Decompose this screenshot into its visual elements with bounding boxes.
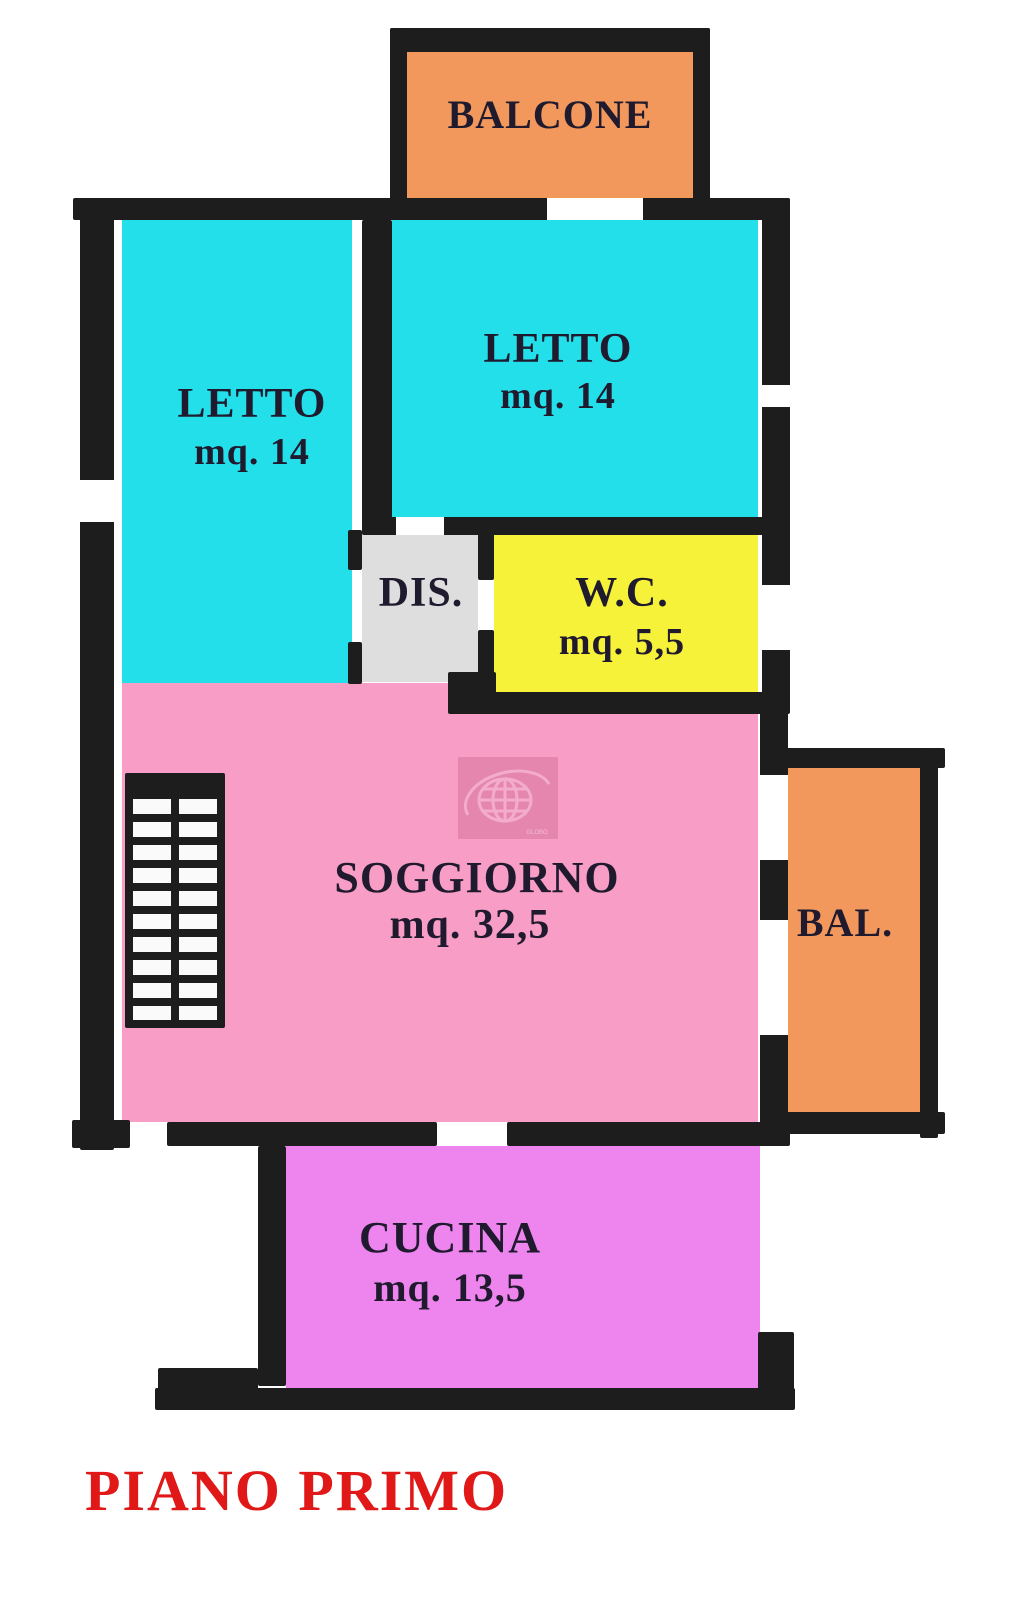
wall-segment — [167, 1122, 437, 1146]
wall-segment — [80, 198, 114, 1150]
wall-segment — [348, 530, 362, 570]
staircase-treads — [133, 799, 171, 1020]
globe-watermark: GLOBO — [458, 757, 558, 839]
wall-opening — [760, 920, 788, 1035]
floorplan-canvas: GLOBO BALCONE LETTO mq. 14 LETTO mq. 14 … — [0, 0, 1024, 1600]
staircase-treads — [179, 799, 217, 1020]
letto-left-area: mq. 14 — [194, 433, 310, 471]
wall-segment — [920, 748, 938, 1138]
balcone-label: BALCONE — [448, 95, 653, 135]
wall-opening — [762, 585, 790, 650]
wall-segment — [693, 28, 710, 200]
letto-right-area: mq. 14 — [500, 377, 616, 415]
wall-segment — [158, 1368, 258, 1390]
soggiorno-label: SOGGIORNO — [334, 856, 619, 900]
wall-segment — [72, 1120, 130, 1148]
wall-segment — [507, 1122, 790, 1146]
wall-segment — [390, 28, 407, 200]
floor-title: PIANO PRIMO — [85, 1462, 508, 1520]
wall-opening — [396, 517, 444, 535]
wall-opening — [547, 198, 643, 220]
wall-segment — [478, 532, 494, 580]
wall-segment — [258, 1146, 286, 1386]
wall-segment — [460, 692, 790, 714]
cucina-area: mq. 13,5 — [373, 1268, 527, 1308]
wall-segment — [348, 642, 362, 684]
soggiorno-area: mq. 32,5 — [390, 904, 551, 946]
cucina-label: CUCINA — [359, 1216, 541, 1260]
wall-segment — [758, 1332, 794, 1390]
disimpegno-label: DIS. — [379, 572, 464, 614]
wc-label: W.C. — [575, 572, 668, 614]
wall-opening — [760, 775, 788, 860]
watermark-text: GLOBO — [526, 830, 548, 836]
wall-segment — [155, 1388, 795, 1410]
letto-right-label: LETTO — [484, 328, 633, 370]
staircase — [125, 773, 225, 1028]
wall-segment — [362, 220, 392, 520]
bal-label: BAL. — [797, 903, 893, 943]
wall-segment — [390, 28, 710, 52]
wc-area: mq. 5,5 — [559, 623, 685, 661]
letto-left-label: LETTO — [178, 383, 327, 425]
wall-opening — [80, 480, 114, 522]
wall-segment — [73, 198, 790, 220]
wall-segment — [760, 748, 945, 768]
wall-opening — [762, 385, 790, 407]
